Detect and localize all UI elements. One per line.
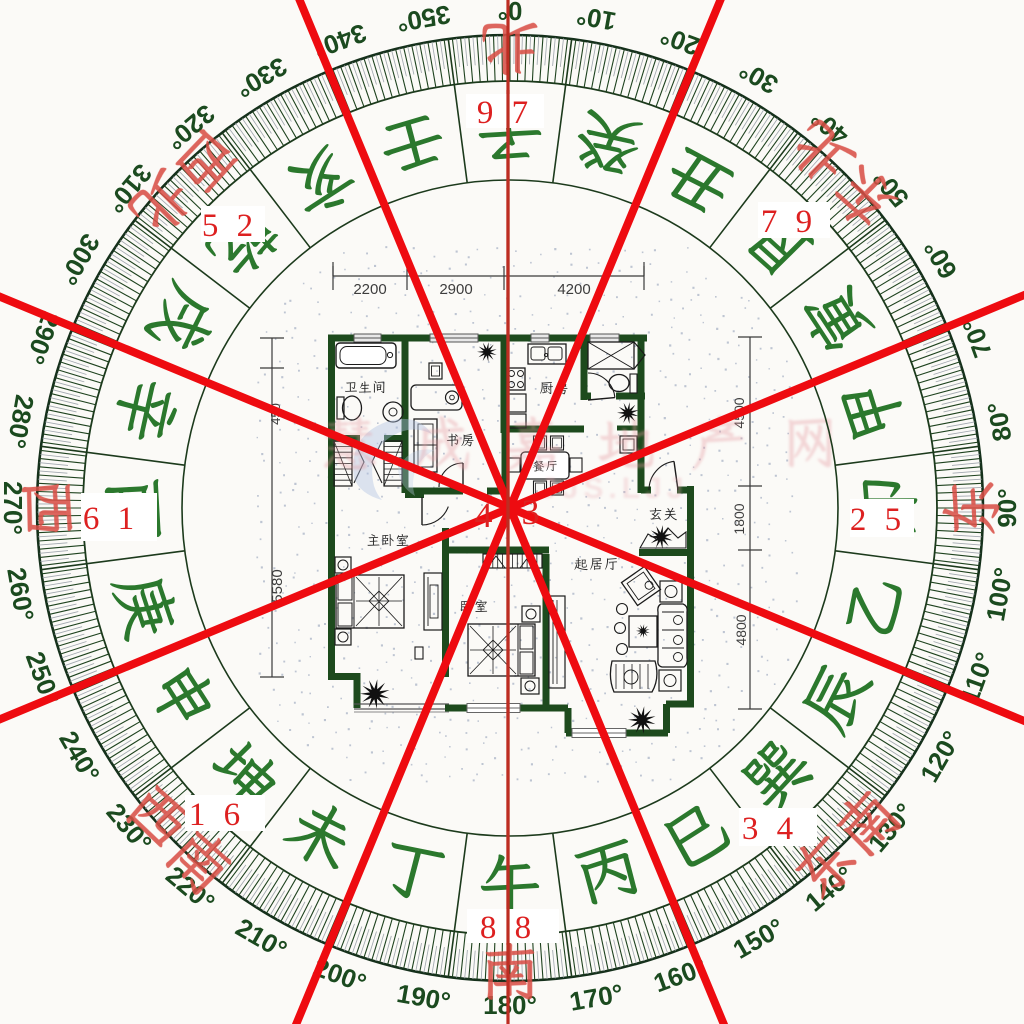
svg-text:0°: 0° (498, 0, 523, 26)
svg-text:7 9: 7 9 (761, 204, 817, 240)
svg-text:5 2: 5 2 (202, 208, 258, 244)
svg-text:2900: 2900 (439, 281, 472, 298)
svg-text:4200: 4200 (557, 281, 590, 298)
svg-text:4: 4 (475, 495, 498, 535)
svg-text:4800: 4800 (733, 614, 749, 645)
svg-text:3 4: 3 4 (742, 811, 798, 847)
svg-text:6 1: 6 1 (83, 501, 139, 537)
svg-text:2 5: 2 5 (850, 502, 906, 538)
svg-text:1 6: 1 6 (189, 797, 245, 833)
svg-text:2200: 2200 (353, 281, 386, 298)
svg-text:9 7: 9 7 (477, 95, 533, 131)
svg-text:3: 3 (522, 492, 545, 532)
svg-text:1800: 1800 (731, 503, 747, 534)
